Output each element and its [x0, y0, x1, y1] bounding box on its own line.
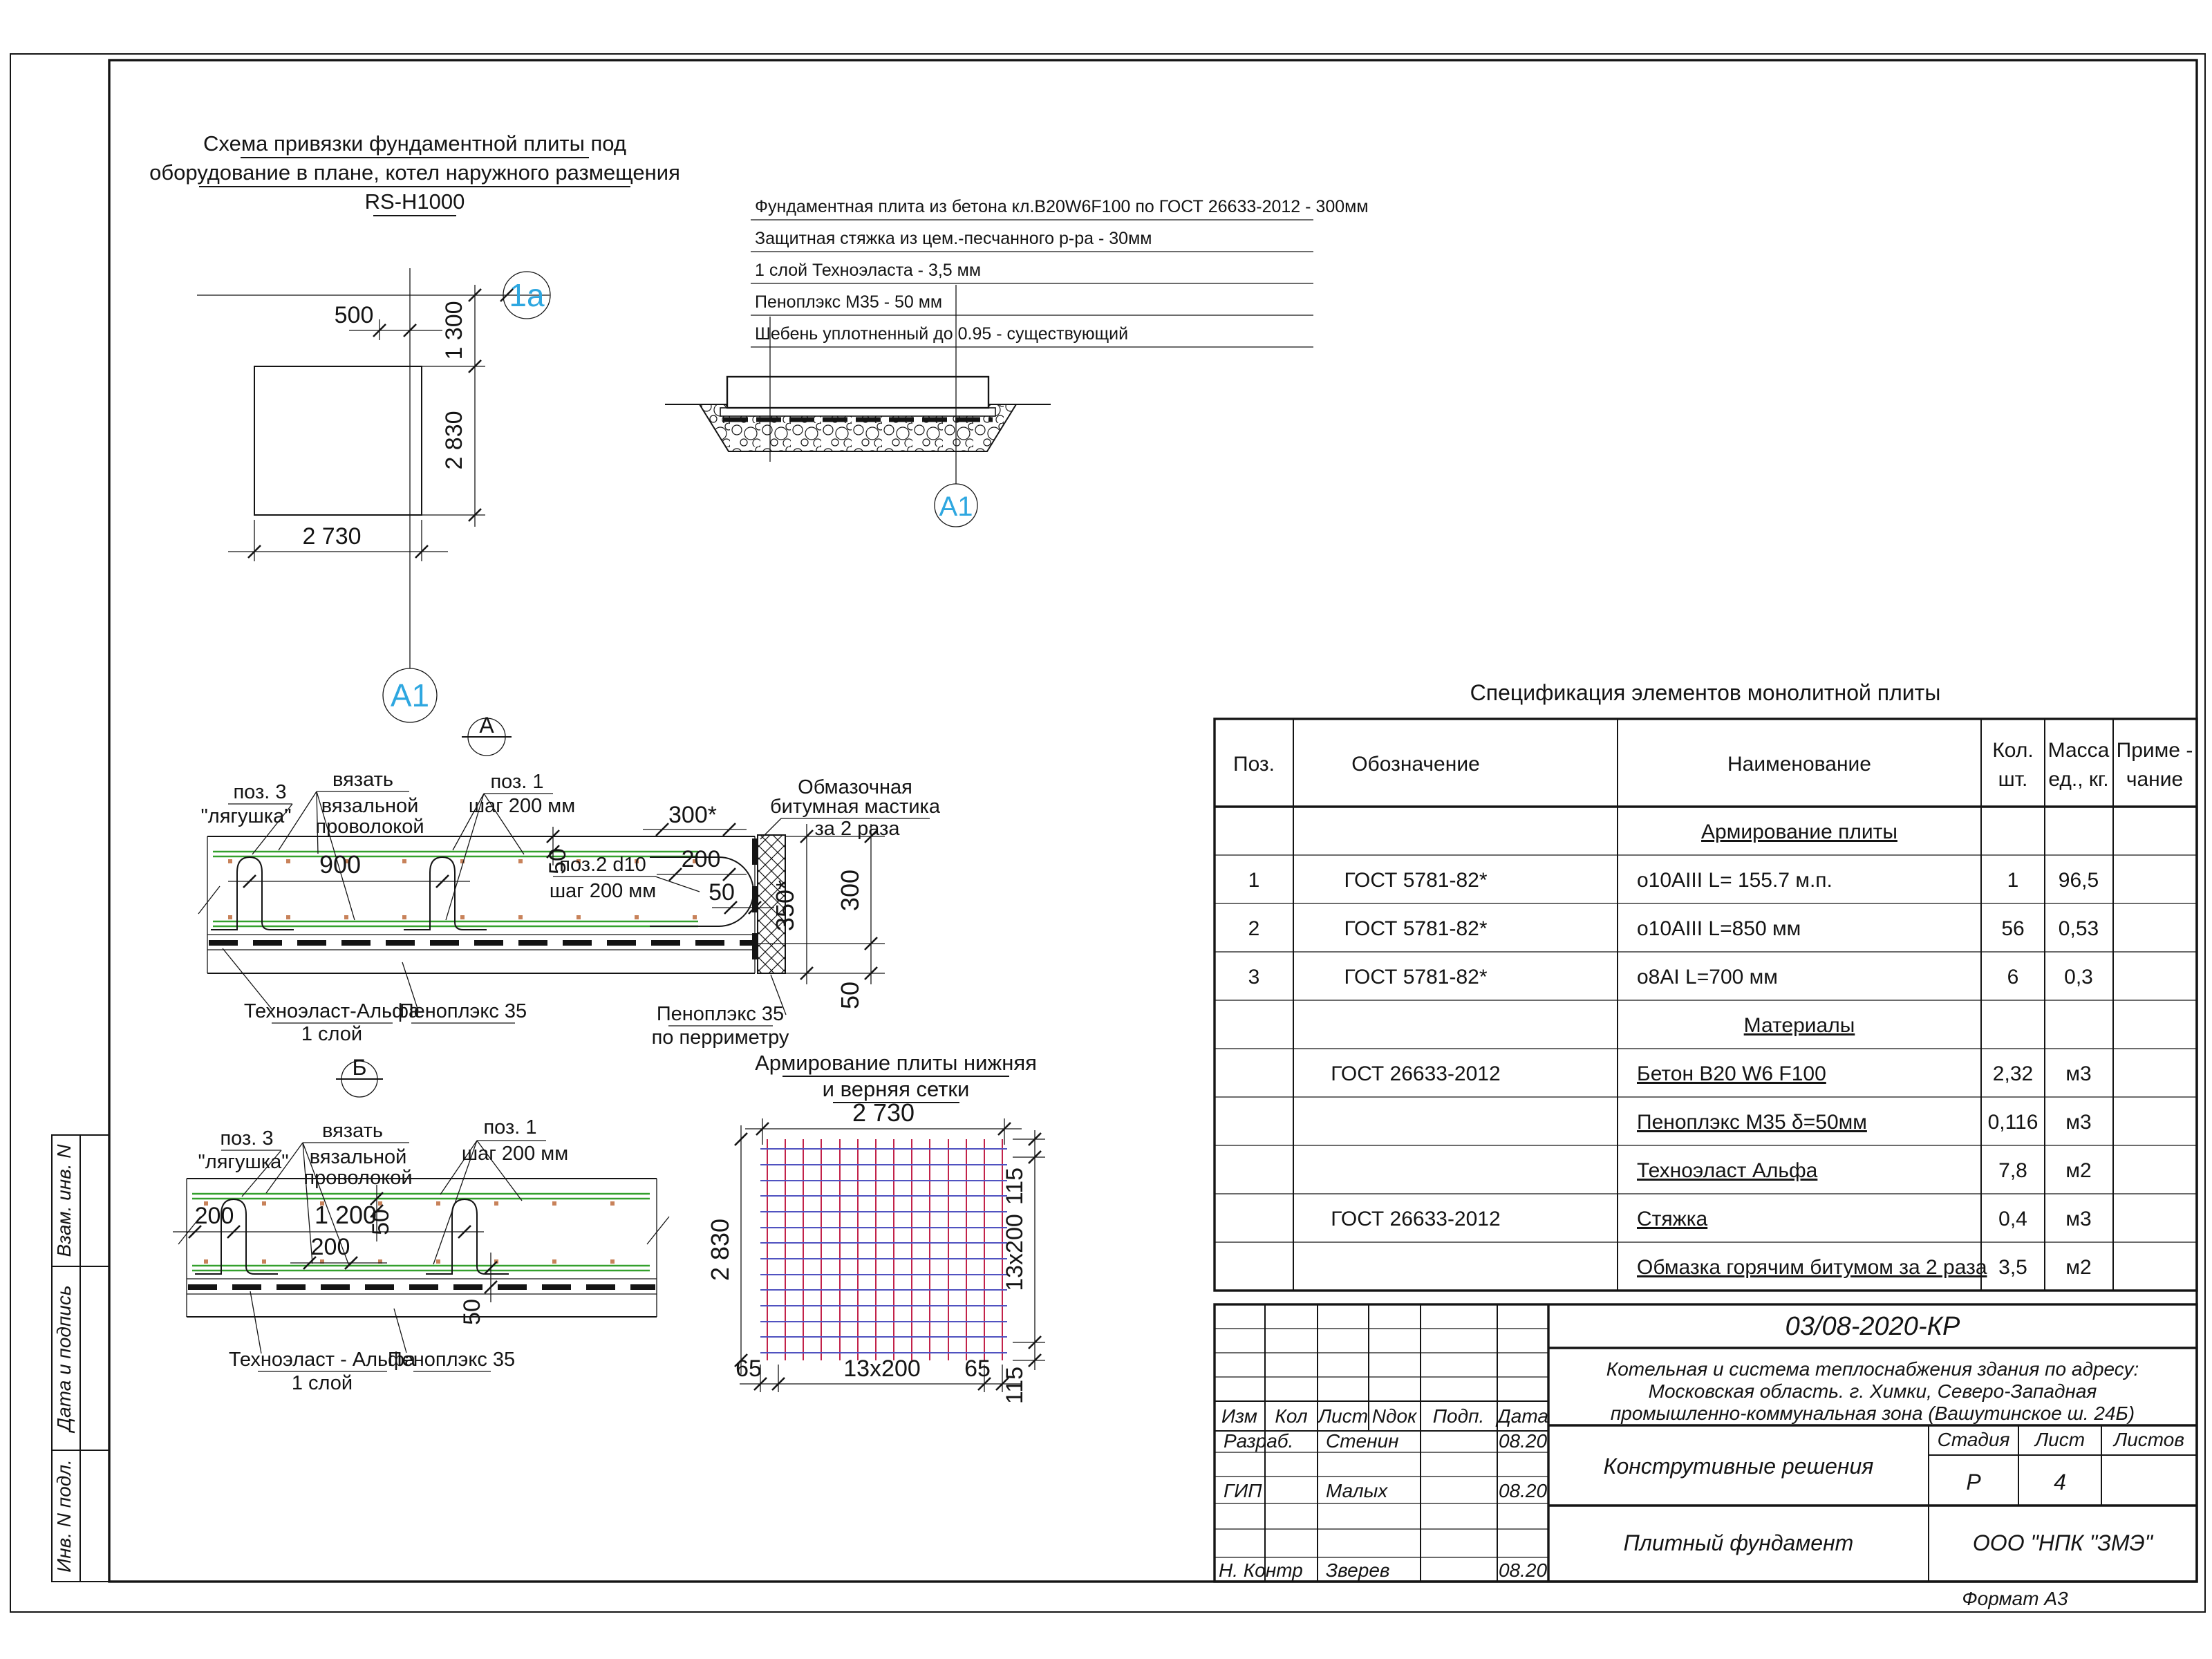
- spec-row-section: Материалы: [1744, 1014, 1855, 1037]
- layer-note-3: 1 слой Техноэласта - 3,5 мм: [755, 261, 981, 280]
- plan-dim-1300: 1 300: [441, 301, 467, 359]
- sa-pos2-line2: шаг 200 мм: [550, 880, 656, 902]
- spec-cell: м3: [2065, 1208, 2091, 1230]
- layer-note-1: Фундаментная плита из бетона кл.B20W6F10…: [755, 197, 1369, 216]
- spec-cell: ГОСТ 5781-82*: [1344, 917, 1488, 940]
- grid-dim-top: 2 730: [852, 1098, 915, 1127]
- spec-cell: o10AIII L= 155.7 м.п.: [1637, 869, 1833, 892]
- sb-tehnoelast-line2: 1 слой: [292, 1372, 353, 1394]
- spec-table: Спецификация элементов монолитной плиты …: [1215, 680, 2197, 1291]
- spec-col-name: Наименование: [1727, 753, 1871, 776]
- side-label-inv: Инв. N подл.: [53, 1459, 75, 1573]
- title-block: Изм Кол Лист Nдок Подп. Дата Разраб. Сте…: [1215, 1304, 2197, 1582]
- sa-tie-line2: вязальной: [321, 795, 419, 817]
- spec-col-pos: Поз.: [1233, 753, 1275, 776]
- tb-stage-value: Р: [1966, 1470, 1981, 1494]
- spec-col-mass-1: Масса: [2048, 739, 2110, 762]
- sa-tehnoelast-line2: 1 слой: [301, 1023, 362, 1045]
- grid-view: Армирование плиты нижняя и верняя сетки …: [706, 1051, 1045, 1404]
- spec-cell: ГОСТ 26633-2012: [1331, 1208, 1500, 1230]
- sa-penoplex-label: Пеноплэкс 35: [400, 1000, 527, 1022]
- sa-tie-line3: проволокой: [315, 816, 424, 838]
- spec-cell: ГОСТ 5781-82*: [1344, 966, 1488, 988]
- grid-title-line1: Армирование плиты нижняя: [755, 1051, 1037, 1075]
- sa-penoplex-perim-line1: Пеноплэкс 35: [657, 1003, 784, 1025]
- spec-cell: Стяжка: [1637, 1208, 1708, 1230]
- tb-col-kol: Кол: [1275, 1405, 1307, 1427]
- spec-cell: ГОСТ 26633-2012: [1331, 1062, 1500, 1085]
- tb-col-izm: Изм: [1221, 1405, 1257, 1427]
- tb-sheet-name: Плитный фундамент: [1624, 1530, 1854, 1555]
- sa-pos1-line1: поз. 1: [490, 771, 543, 793]
- spec-row-section: Армирование плиты: [1701, 821, 1897, 843]
- tb-stage-label: Стадия: [1938, 1429, 2010, 1450]
- grid-dim-right-bottom: 115: [1002, 1367, 1028, 1404]
- spec-cell: o10AIII L=850 мм: [1637, 917, 1801, 940]
- sb-tie-line3: проволокой: [303, 1167, 412, 1189]
- plan-title-line3: RS-H1000: [365, 189, 465, 214]
- spec-cell: 56: [2001, 917, 2024, 940]
- section-a-view: поз. 3 "лягушка" вязать вязальной провол…: [198, 769, 941, 1049]
- sb-tie-line1: вязать: [322, 1120, 383, 1142]
- tb-gip-date: 08.20: [1499, 1480, 1547, 1501]
- tb-doc-type: Конструтивные решения: [1604, 1454, 1874, 1479]
- sa-dim-350s: 350*: [771, 880, 799, 931]
- plan-title-line1: Схема привязки фундаментной плиты под: [203, 131, 626, 156]
- tb-list-value: 4: [2054, 1470, 2066, 1494]
- sa-dim-900: 900: [319, 850, 361, 879]
- grid-blue-bars: [760, 1149, 1007, 1353]
- layer-note-2: Защитная стяжка из цем.-песчанного р-ра …: [755, 229, 1152, 248]
- spec-cell: Обмазка горячим битумом за 2 раза: [1637, 1256, 1987, 1279]
- tb-list-label: Лист: [2034, 1429, 2085, 1450]
- sa-mastic-line3: за 2 раза: [814, 818, 900, 840]
- tb-company: ООО "НПК "ЗМЭ": [1973, 1530, 2154, 1555]
- sb-pos3-line2: "лягушка": [198, 1151, 288, 1173]
- spec-cell: 0,53: [2059, 917, 2099, 940]
- sa-dim-50-cover: 50: [545, 848, 571, 874]
- sa-mastic-line2: битумная мастика: [770, 796, 941, 818]
- grid-title-line2: и верняя сетки: [823, 1077, 970, 1101]
- plan-section-mark-a: А: [479, 713, 494, 738]
- spec-cell: 96,5: [2059, 869, 2099, 892]
- grid-dim-left: 2 830: [706, 1219, 734, 1281]
- spec-cell: 1: [2007, 869, 2019, 892]
- tb-project-line2: Московская область. г. Химки, Северо-Зап…: [1649, 1380, 2097, 1402]
- spec-col-designation: Обозначение: [1351, 753, 1480, 776]
- axis-a1-label: A1: [391, 677, 429, 713]
- plan-title-line2: оборудование в плане, котел наружного ра…: [149, 160, 680, 185]
- tb-col-ndok: Nдок: [1372, 1405, 1418, 1427]
- spec-cell: 3,5: [1998, 1256, 2027, 1279]
- tb-listov-label: Листов: [2112, 1429, 2184, 1450]
- sa-dim-300: 300: [836, 870, 864, 911]
- spec-cell: Бетон B20 W6 F100: [1637, 1062, 1826, 1085]
- spec-cell: Пеноплэкс М35 δ=50мм: [1637, 1111, 1867, 1134]
- side-label-data-podpis: Дата и подпись: [53, 1285, 75, 1433]
- sa-pos1-line2: шаг 200 мм: [469, 795, 575, 817]
- spec-col-note-2: чание: [2126, 768, 2183, 791]
- section-b-view: Б поз. 3 "лягушка" вязать вязальной пров…: [173, 1055, 669, 1394]
- tb-gip-name: Малых: [1326, 1480, 1388, 1501]
- tb-nkontr-date: 08.20: [1499, 1559, 1547, 1581]
- cross-section-view: Фундаментная плита из бетона кл.B20W6F10…: [665, 197, 1369, 527]
- plan-dim-2830: 2 830: [441, 411, 467, 469]
- grid-dim-right-top: 115: [1002, 1168, 1028, 1205]
- spec-cell: 2,32: [1993, 1062, 2033, 1085]
- spec-cell: 3: [1248, 966, 1260, 988]
- sa-tehnoelast-line1: Техноэласт-Альфа: [244, 1000, 420, 1022]
- spec-cell: м2: [2065, 1256, 2091, 1279]
- sb-dim-50-right: 50: [459, 1299, 485, 1325]
- grid-red-bars: [767, 1139, 1002, 1360]
- sa-penoplex-perim-line2: по перриметру: [652, 1027, 789, 1049]
- layer-note-5: Шебень уплотненный до 0.95 - существующи…: [755, 324, 1128, 344]
- tb-col-list: Лист: [1317, 1405, 1368, 1427]
- sa-pos3-line1: поз. 3: [233, 781, 286, 803]
- sa-dim-50-bottom: 50: [836, 982, 864, 1009]
- side-label-vzam: Взам. инв. N: [53, 1144, 75, 1257]
- sa-dim-200: 200: [682, 846, 721, 872]
- drawing-canvas: Взам. инв. N Дата и подпись Инв. N подл.…: [0, 0, 2212, 1659]
- format-label: Формат А3: [1962, 1588, 2068, 1609]
- tb-col-podp: Подп.: [1433, 1405, 1485, 1427]
- sa-tie-line1: вязать: [332, 769, 393, 791]
- grid-dim-bottom-right: 65: [964, 1356, 991, 1382]
- tb-doc-number: 03/08-2020-КР: [1785, 1312, 1960, 1341]
- spec-cell: 0,3: [2064, 966, 2093, 988]
- sa-pos3-line2: "лягушка": [200, 805, 291, 827]
- grid-dim-bottom-mid: 13x200: [843, 1356, 921, 1382]
- tb-nkontr-role: Н. Контр: [1219, 1559, 1303, 1581]
- tb-project-line1: Котельная и система теплоснабжения здани…: [1606, 1358, 2139, 1380]
- spec-cell: м2: [2065, 1159, 2091, 1182]
- tb-gip-role: ГИП: [1224, 1480, 1262, 1501]
- grid-dim-right-mid: 13x200: [1002, 1214, 1028, 1291]
- drawing-sheet: Взам. инв. N Дата и подпись Инв. N подл.…: [0, 0, 2212, 1659]
- spec-cell: м3: [2065, 1062, 2091, 1085]
- spec-col-qty-1: Кол.: [1992, 739, 2033, 762]
- sa-dim-50-edge: 50: [709, 879, 735, 906]
- spec-col-note-1: Приме -: [2117, 739, 2193, 762]
- spec-cell: Техноэласт Альфа: [1637, 1159, 1818, 1182]
- spec-cell: 2: [1248, 917, 1260, 940]
- plan-dim-500: 500: [335, 302, 374, 328]
- sa-dim-300s: 300*: [668, 802, 717, 828]
- spec-col-mass-2: ед., кг.: [2048, 768, 2108, 791]
- axis-1a-label: 1a: [509, 277, 545, 313]
- sb-pos1-line1: поз. 1: [483, 1116, 536, 1138]
- tb-razrab-role: Разраб.: [1224, 1430, 1293, 1452]
- spec-cell: ГОСТ 5781-82*: [1344, 869, 1488, 892]
- tb-project-line3: промышленно-коммунальная зона (Вашутинск…: [1611, 1403, 2135, 1424]
- spec-cell: 0,116: [1988, 1111, 2038, 1134]
- spec-cell: 0,4: [1998, 1208, 2027, 1230]
- section-b-mark: Б: [353, 1055, 367, 1080]
- tb-nkontr-name: Зверев: [1326, 1559, 1390, 1581]
- spec-cell: 1: [1248, 869, 1260, 892]
- sb-pos1-line2: шаг 200 мм: [462, 1143, 568, 1165]
- sb-dim-50-top: 50: [368, 1209, 394, 1235]
- spec-cell: м3: [2065, 1111, 2091, 1134]
- tb-razrab-name: Стенин: [1326, 1430, 1399, 1452]
- tb-razrab-date: 08.20: [1499, 1430, 1547, 1452]
- spec-title: Спецификация элементов монолитной плиты: [1470, 680, 1941, 705]
- spec-cell: o8AI L=700 мм: [1637, 966, 1778, 988]
- spec-col-qty-2: шт.: [1998, 768, 2028, 791]
- spec-cell: 7,8: [1998, 1159, 2027, 1182]
- sb-dim-200-left: 200: [195, 1203, 234, 1229]
- sb-penoplex-label: Пеноплэкс 35: [388, 1349, 515, 1371]
- plan-view: Схема привязки фундаментной плиты под об…: [149, 131, 680, 756]
- sb-tie-line2: вязальной: [310, 1146, 407, 1168]
- layer-note-4: Пеноплэкс М35 - 50 мм: [755, 292, 942, 312]
- tb-col-data: Дата: [1495, 1405, 1548, 1427]
- spec-cell: 6: [2007, 966, 2019, 988]
- grid-dim-bottom-left: 65: [735, 1356, 762, 1382]
- sb-pos3-line1: поз. 3: [220, 1127, 273, 1150]
- section-axis-a1: A1: [939, 491, 973, 522]
- sa-pos2-line1: поз.2 d10: [559, 854, 646, 876]
- plan-dim-2730: 2 730: [302, 523, 361, 550]
- sb-dim-200-mid: 200: [311, 1234, 350, 1260]
